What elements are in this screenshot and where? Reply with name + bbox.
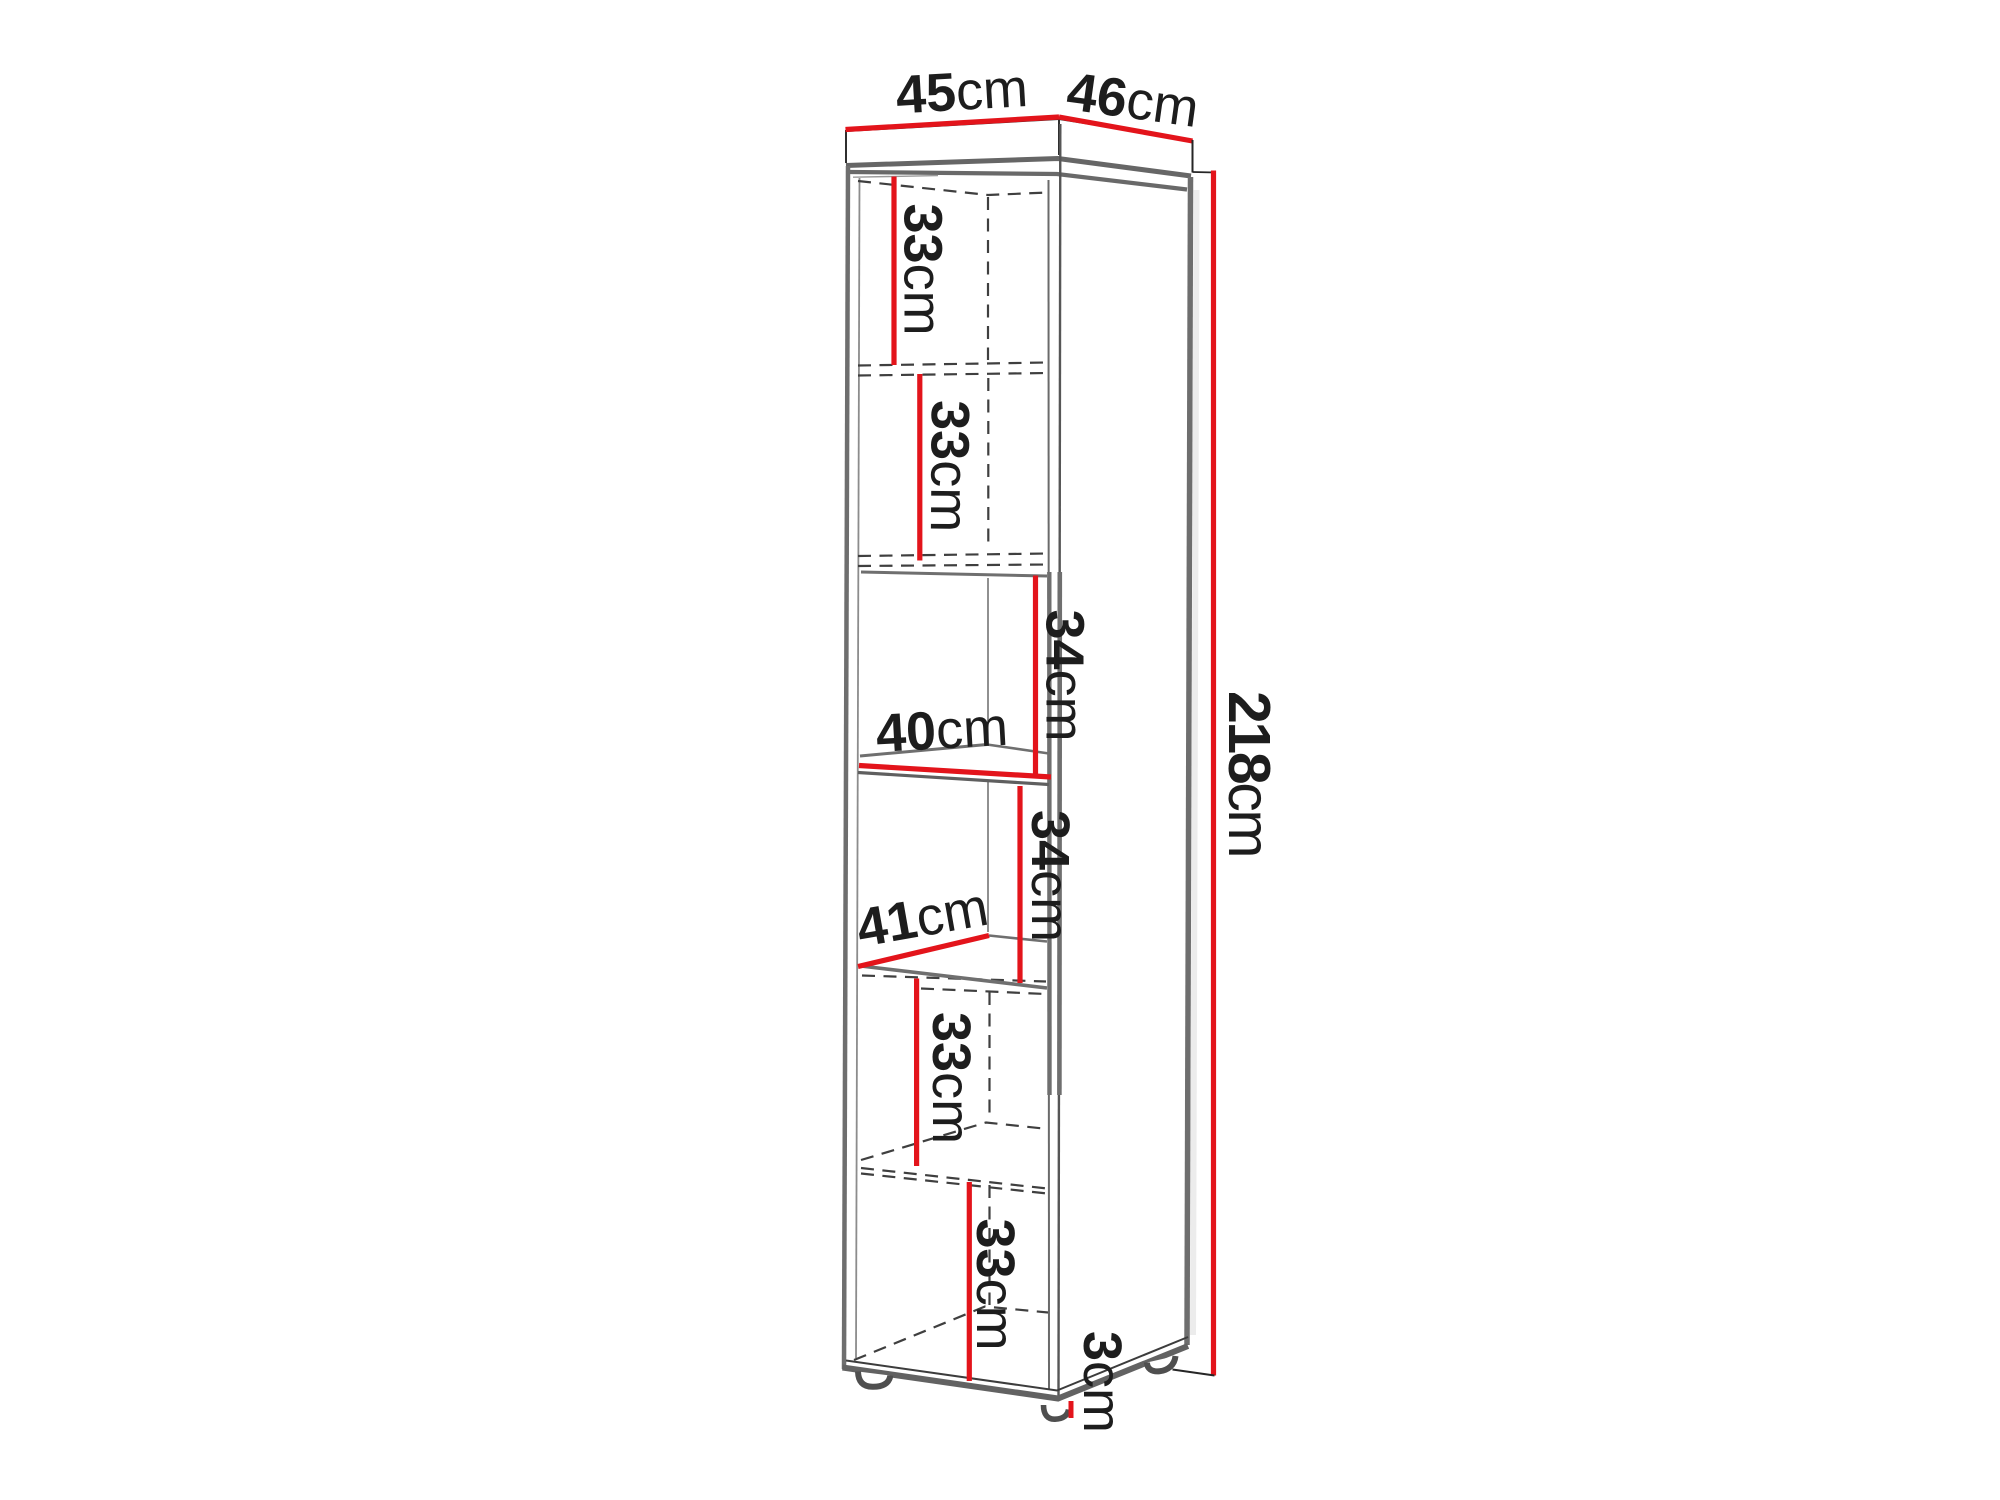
svg-text:34cm: 34cm	[1035, 610, 1095, 742]
svg-text:33cm: 33cm	[893, 204, 953, 336]
svg-text:40cm: 40cm	[874, 697, 1009, 764]
svg-text:33cm: 33cm	[921, 1012, 981, 1144]
svg-text:45cm: 45cm	[894, 58, 1029, 126]
svg-text:33cm: 33cm	[965, 1219, 1025, 1351]
svg-text:3cm: 3cm	[1072, 1331, 1132, 1433]
svg-text:33cm: 33cm	[919, 400, 980, 533]
svg-text:34cm: 34cm	[1020, 810, 1080, 942]
svg-text:218cm: 218cm	[1216, 691, 1282, 856]
